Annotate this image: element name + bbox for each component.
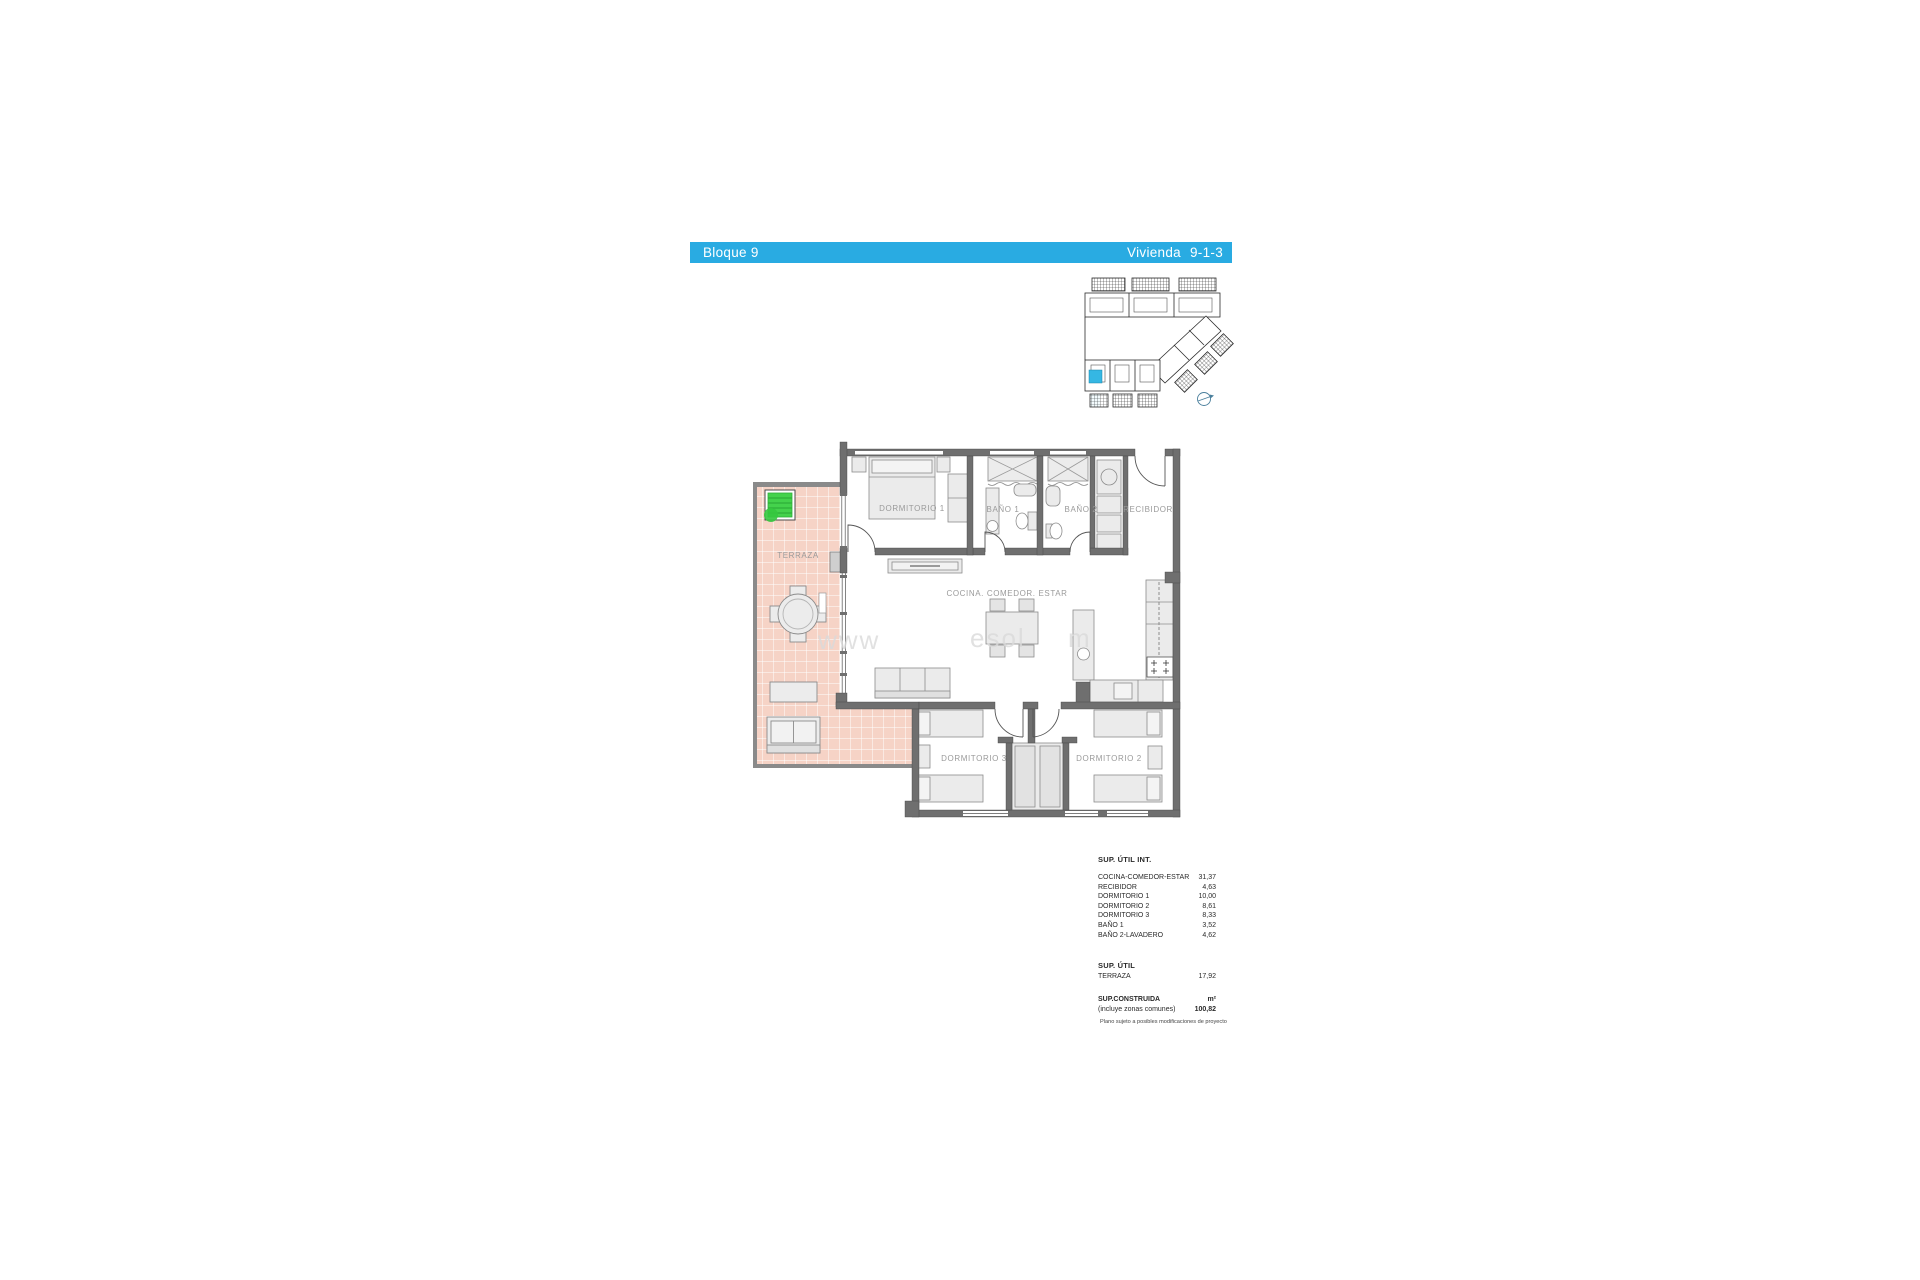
row-label: DORMITORIO 1 — [1098, 892, 1149, 902]
room-label-cocina: COCINA. COMEDOR. ESTAR — [946, 589, 1067, 598]
util-int-title: SUP. ÚTIL INT. — [1098, 855, 1216, 864]
terrace-low-table — [770, 682, 817, 702]
row-value: 3,52 — [1202, 921, 1216, 931]
footnote: Plano sujeto a posibles modificaciones d… — [1098, 1019, 1216, 1025]
block-title: Bloque 9 — [690, 245, 759, 260]
row-value: 17,92 — [1198, 972, 1216, 982]
areas-table: SUP. ÚTIL INT. COCINA-COMEDOR-ESTAR 31,3… — [1098, 855, 1216, 1025]
site-plan-buildings — [1085, 278, 1233, 392]
row-label: DORMITORIO 2 — [1098, 902, 1149, 912]
row-value: 31,37 — [1198, 873, 1216, 883]
row-label: RECIBIDOR — [1098, 883, 1137, 893]
svg-text:m: m — [1068, 623, 1092, 653]
north-arrow-icon — [1198, 393, 1215, 406]
site-plan — [1082, 272, 1234, 418]
table-row: DORMITORIO 1 10,00 — [1098, 892, 1216, 902]
plan-sheet: { "header": { "block": "Bloque 9", "dwel… — [0, 0, 1920, 1280]
room-label-bano-2: BAÑO 2 — [1065, 505, 1098, 514]
row-label: DORMITORIO 3 — [1098, 911, 1149, 921]
dwelling-value: 9-1-3 — [1190, 245, 1223, 260]
construida-value: 100,82 — [1195, 1005, 1216, 1016]
row-value: 8,33 — [1202, 911, 1216, 921]
table-row: DORMITORIO 3 8,33 — [1098, 911, 1216, 921]
room-label-dormitorio-2: DORMITORIO 2 — [1076, 754, 1142, 763]
room-label-terraza: TERRAZA — [777, 551, 819, 560]
site-plan-balconies — [1090, 394, 1157, 407]
table-row: TERRAZA 17,92 — [1098, 972, 1216, 982]
construida-note: (incluye zonas comunes) — [1098, 1005, 1175, 1016]
terrace-bench — [767, 717, 820, 753]
row-value: 4,62 — [1202, 931, 1216, 941]
construida-title: SUP.CONSTRUIDA — [1098, 995, 1160, 1006]
row-value: 4,63 — [1202, 883, 1216, 893]
room-label-bano-1: BAÑO 1 — [987, 505, 1020, 514]
table-row: RECIBIDOR 4,63 — [1098, 883, 1216, 893]
room-label-dormitorio-3: DORMITORIO 3 — [941, 754, 1007, 763]
row-value: 10,00 — [1198, 892, 1216, 902]
row-value: 8,61 — [1202, 902, 1216, 912]
row-label: BAÑO 1 — [1098, 921, 1124, 931]
util-int-rows: COCINA-COMEDOR-ESTAR 31,37 RECIBIDOR 4,6… — [1098, 873, 1216, 940]
dwelling-label: Vivienda — [1127, 245, 1181, 260]
table-row: BAÑO 2-LAVADERO 4,62 — [1098, 931, 1216, 941]
table-row: (incluye zonas comunes) 100,82 — [1098, 1005, 1216, 1016]
svg-text:esol: esol — [970, 623, 1026, 653]
svg-text:www: www — [817, 625, 880, 655]
construida-unit: m² — [1207, 995, 1216, 1006]
room-label-dormitorio-1: DORMITORIO 1 — [879, 504, 945, 513]
terrace-planter-box — [819, 593, 826, 613]
table-row: DORMITORIO 2 8,61 — [1098, 902, 1216, 912]
title-bar: Bloque 9 Vivienda 9-1-3 — [690, 242, 1232, 263]
table-row: SUP.CONSTRUIDA m² — [1098, 995, 1216, 1006]
util-title: SUP. ÚTIL — [1098, 961, 1216, 970]
table-row: BAÑO 1 3,52 — [1098, 921, 1216, 931]
highlighted-unit — [1089, 370, 1102, 383]
room-label-recibidor: RECIBIDOR — [1123, 505, 1173, 514]
planter — [764, 490, 795, 522]
dwelling-title: Vivienda 9-1-3 — [1127, 245, 1232, 260]
floor-plan: TERRAZA DORMITORIO 1 BAÑO 1 BAÑO 2 RECIB… — [740, 430, 1220, 850]
table-row: COCINA-COMEDOR-ESTAR 31,37 — [1098, 873, 1216, 883]
construida-block: SUP.CONSTRUIDA m² (incluye zonas comunes… — [1098, 995, 1216, 1016]
row-label: TERRAZA — [1098, 972, 1131, 982]
row-label: BAÑO 2-LAVADERO — [1098, 931, 1163, 941]
row-label: COCINA-COMEDOR-ESTAR — [1098, 873, 1189, 883]
